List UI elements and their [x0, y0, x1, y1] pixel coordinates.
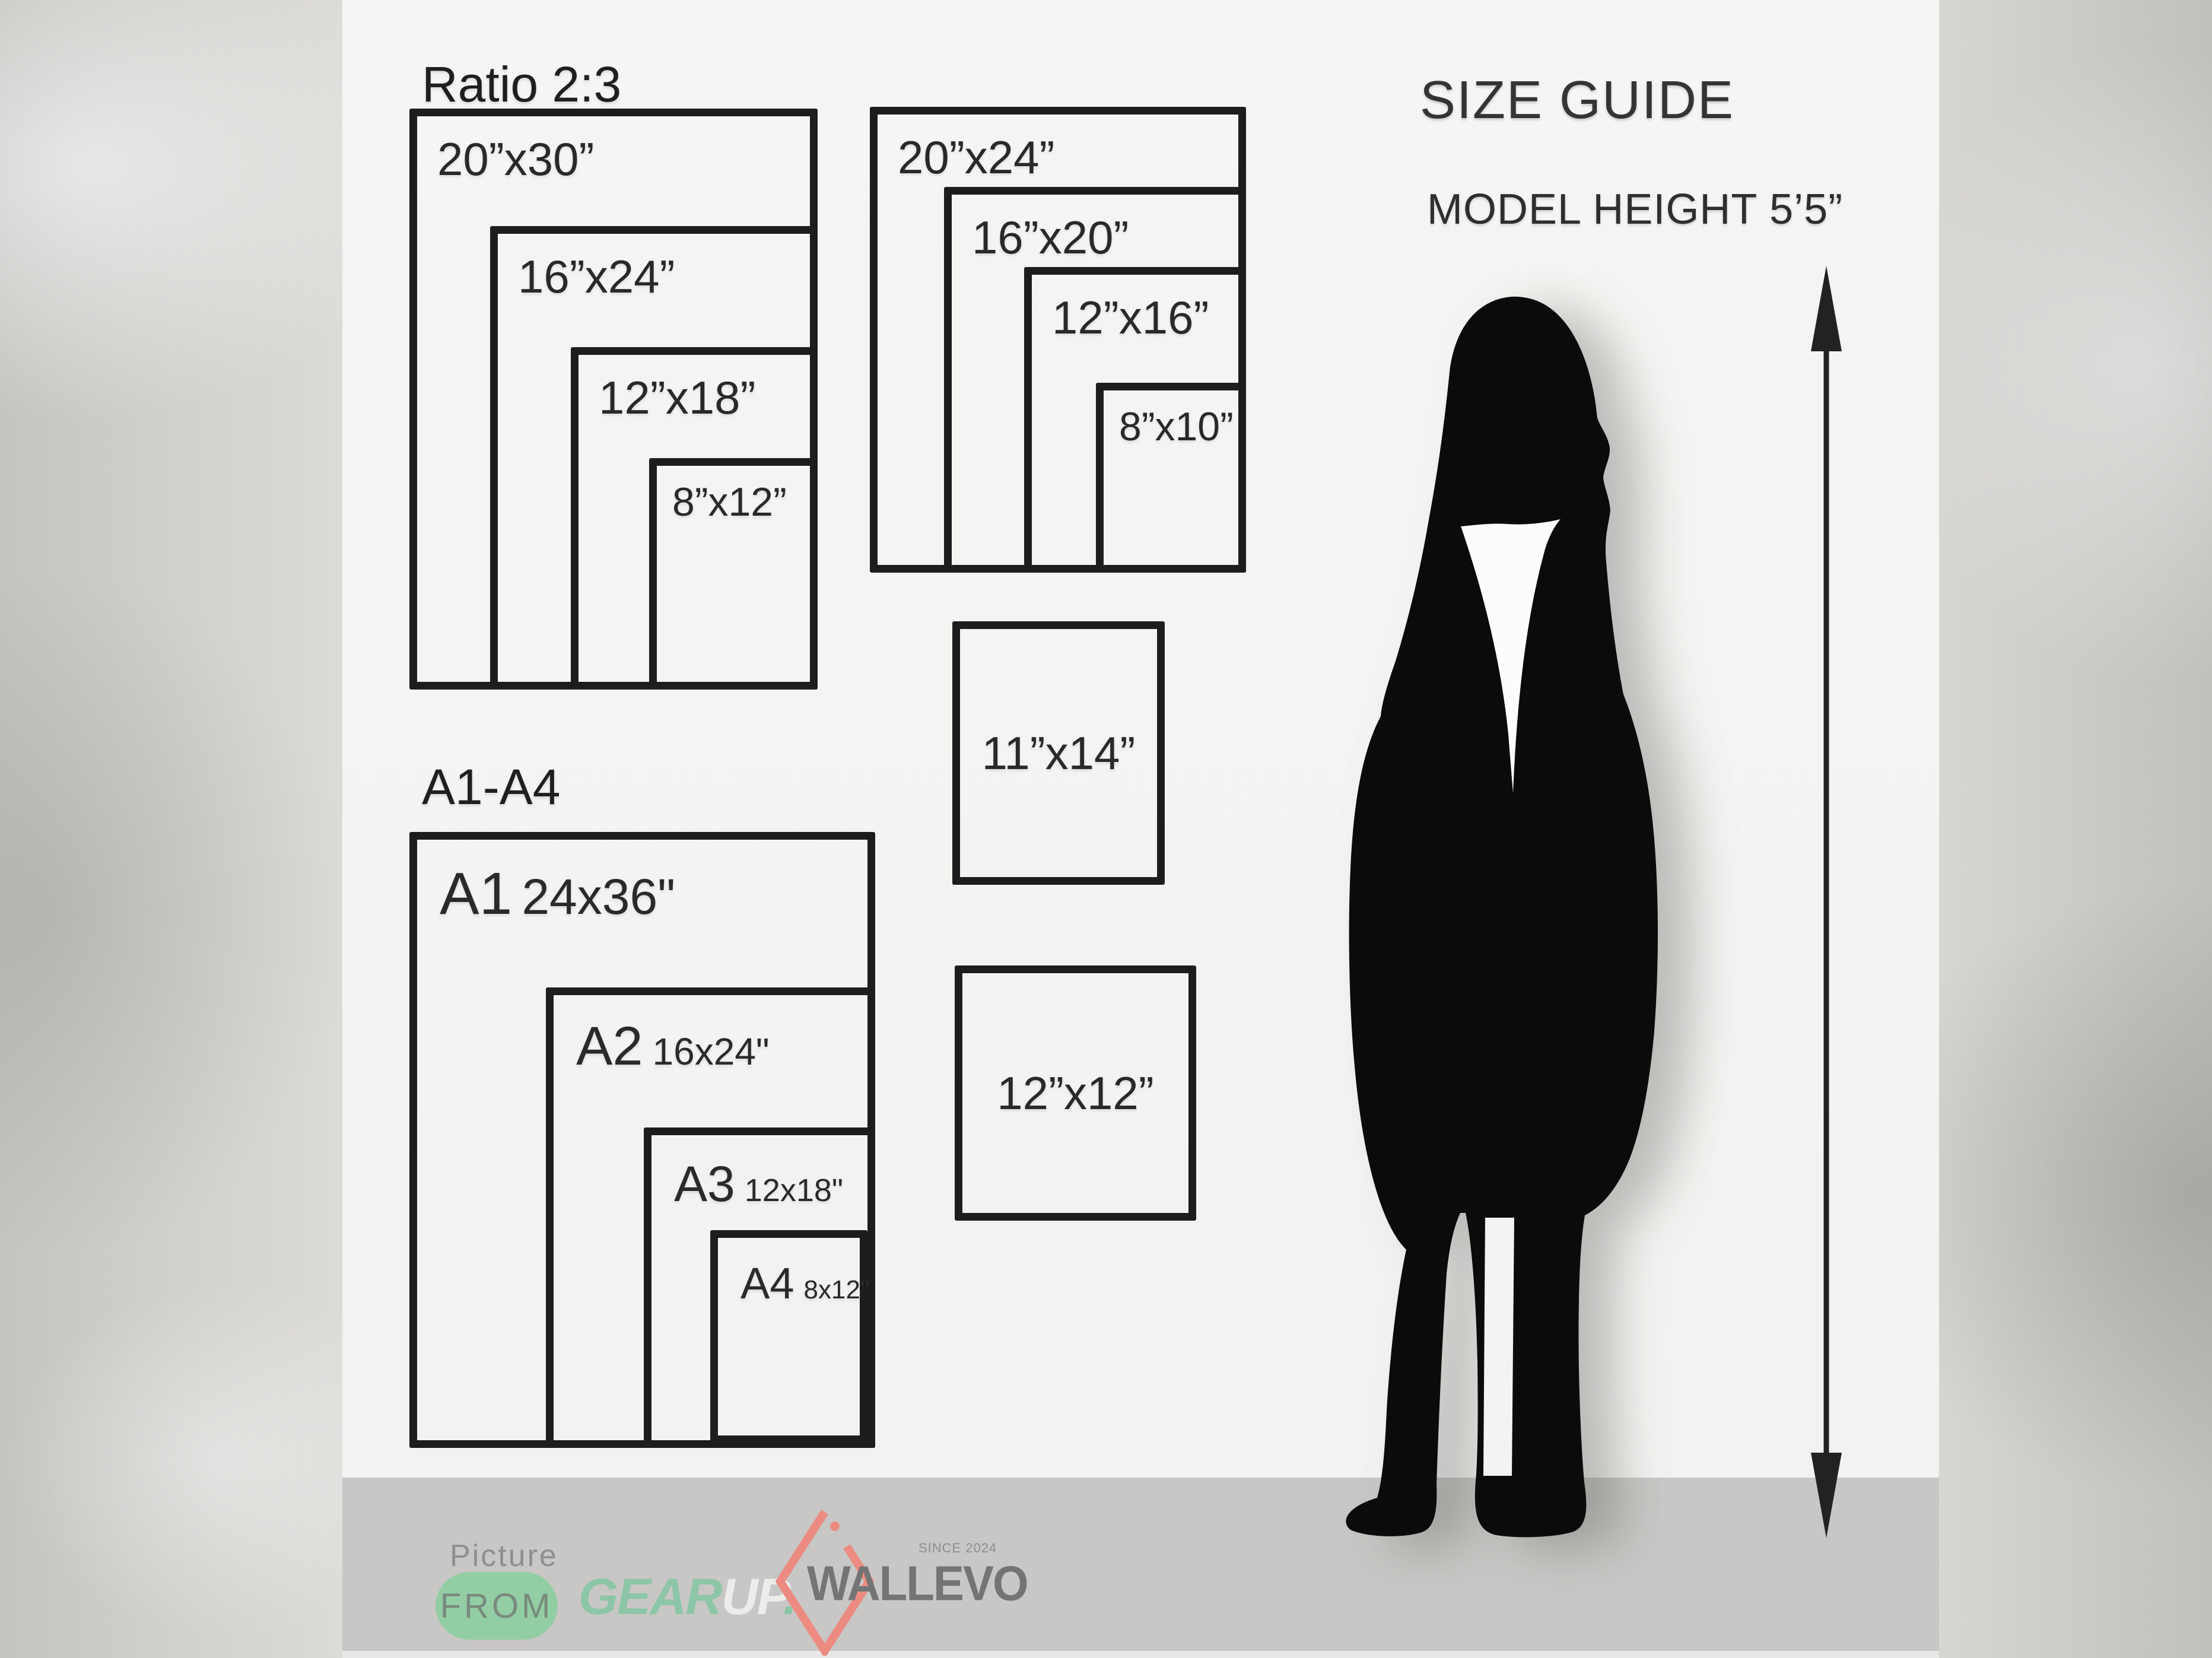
footer-bottom-strip: [342, 1651, 1939, 1658]
a-size-inches: 12x18": [745, 1172, 843, 1209]
a-group-heading: A1-A4: [422, 762, 560, 812]
height-arrow-icon: [1803, 261, 1850, 1543]
gearup-logo: GEARUP.: [579, 1568, 796, 1627]
ratio-group-heading: Ratio 2:3: [422, 59, 621, 109]
size-box-label: 8”x12”: [657, 466, 810, 525]
size-box-label: 12”x18”: [579, 355, 810, 424]
page-title: SIZE GUIDE: [1420, 70, 1734, 131]
size-box-8x10: 8”x10”: [1096, 383, 1246, 573]
size-box-label: 12”x12”: [997, 1066, 1153, 1120]
size-box-label: 20”x24”: [878, 115, 1238, 183]
a-size-inches: 16x24": [653, 1030, 770, 1073]
size-box-label: 11”x14”: [982, 726, 1136, 780]
a-size-inches: 24x36": [522, 868, 675, 926]
a-size-inches: 8x12": [804, 1275, 870, 1305]
wallevo-logo: WALLEVO: [807, 1555, 1028, 1612]
a-size-name: A4: [740, 1258, 794, 1308]
size-box-label: 16”x20”: [952, 195, 1238, 263]
size-box-a4: A4 8x12": [710, 1230, 867, 1443]
a-size-name: A2: [576, 1015, 643, 1078]
size-box-8x12: 8”x12”: [649, 458, 818, 690]
size-box-label: 12”x16”: [1032, 275, 1238, 344]
model-height-label: MODEL HEIGHT 5’5”: [1427, 185, 1843, 234]
picture-label: Picture: [450, 1538, 558, 1574]
size-box-label: 8”x10”: [1104, 390, 1238, 449]
a-size-name: A3: [674, 1155, 735, 1213]
model-silhouette: [1305, 292, 1721, 1544]
from-badge: FROM: [436, 1572, 558, 1640]
size-box-12x12: 12”x12”: [955, 965, 1196, 1221]
size-box-11x14: 11”x14”: [952, 621, 1165, 885]
size-guide-poster: Ratio 2:3 20”x30” 16”x24” 12”x18” 8”x12”…: [0, 0, 2212, 1658]
gearup-logo-gear: GEAR: [579, 1568, 721, 1625]
wallevo-since-label: SINCE 2024: [919, 1541, 997, 1556]
size-box-label: 20”x30”: [417, 116, 810, 185]
a-size-name: A1: [440, 860, 512, 928]
size-box-label: 16”x24”: [498, 234, 810, 303]
from-badge-label: FROM: [440, 1586, 554, 1626]
